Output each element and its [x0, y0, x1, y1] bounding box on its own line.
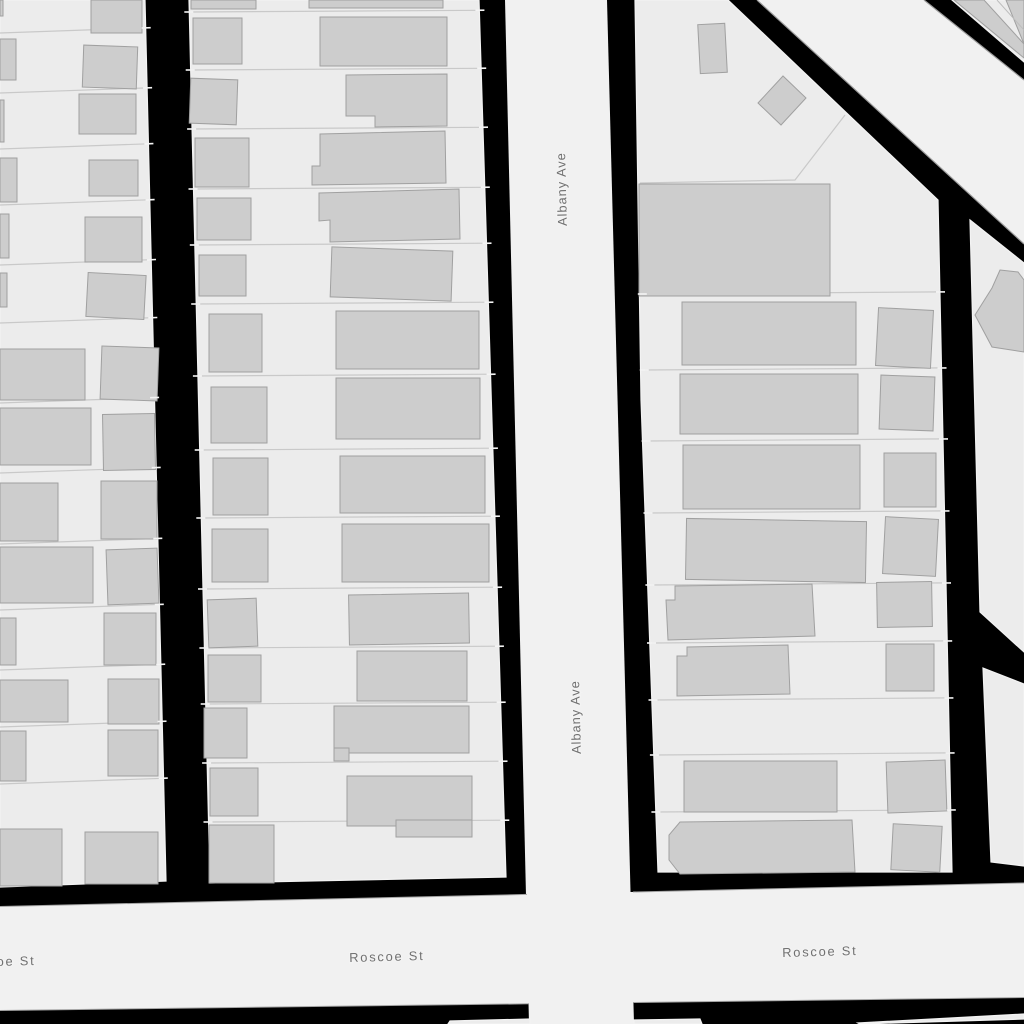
svg-text:Albany Ave: Albany Ave [567, 680, 584, 754]
svg-text:Roscoe St: Roscoe St [782, 943, 858, 960]
svg-text:Roscoe St: Roscoe St [349, 948, 425, 965]
svg-text:Albany Ave: Albany Ave [553, 152, 570, 226]
svg-text:Roscoe St: Roscoe St [0, 953, 36, 970]
